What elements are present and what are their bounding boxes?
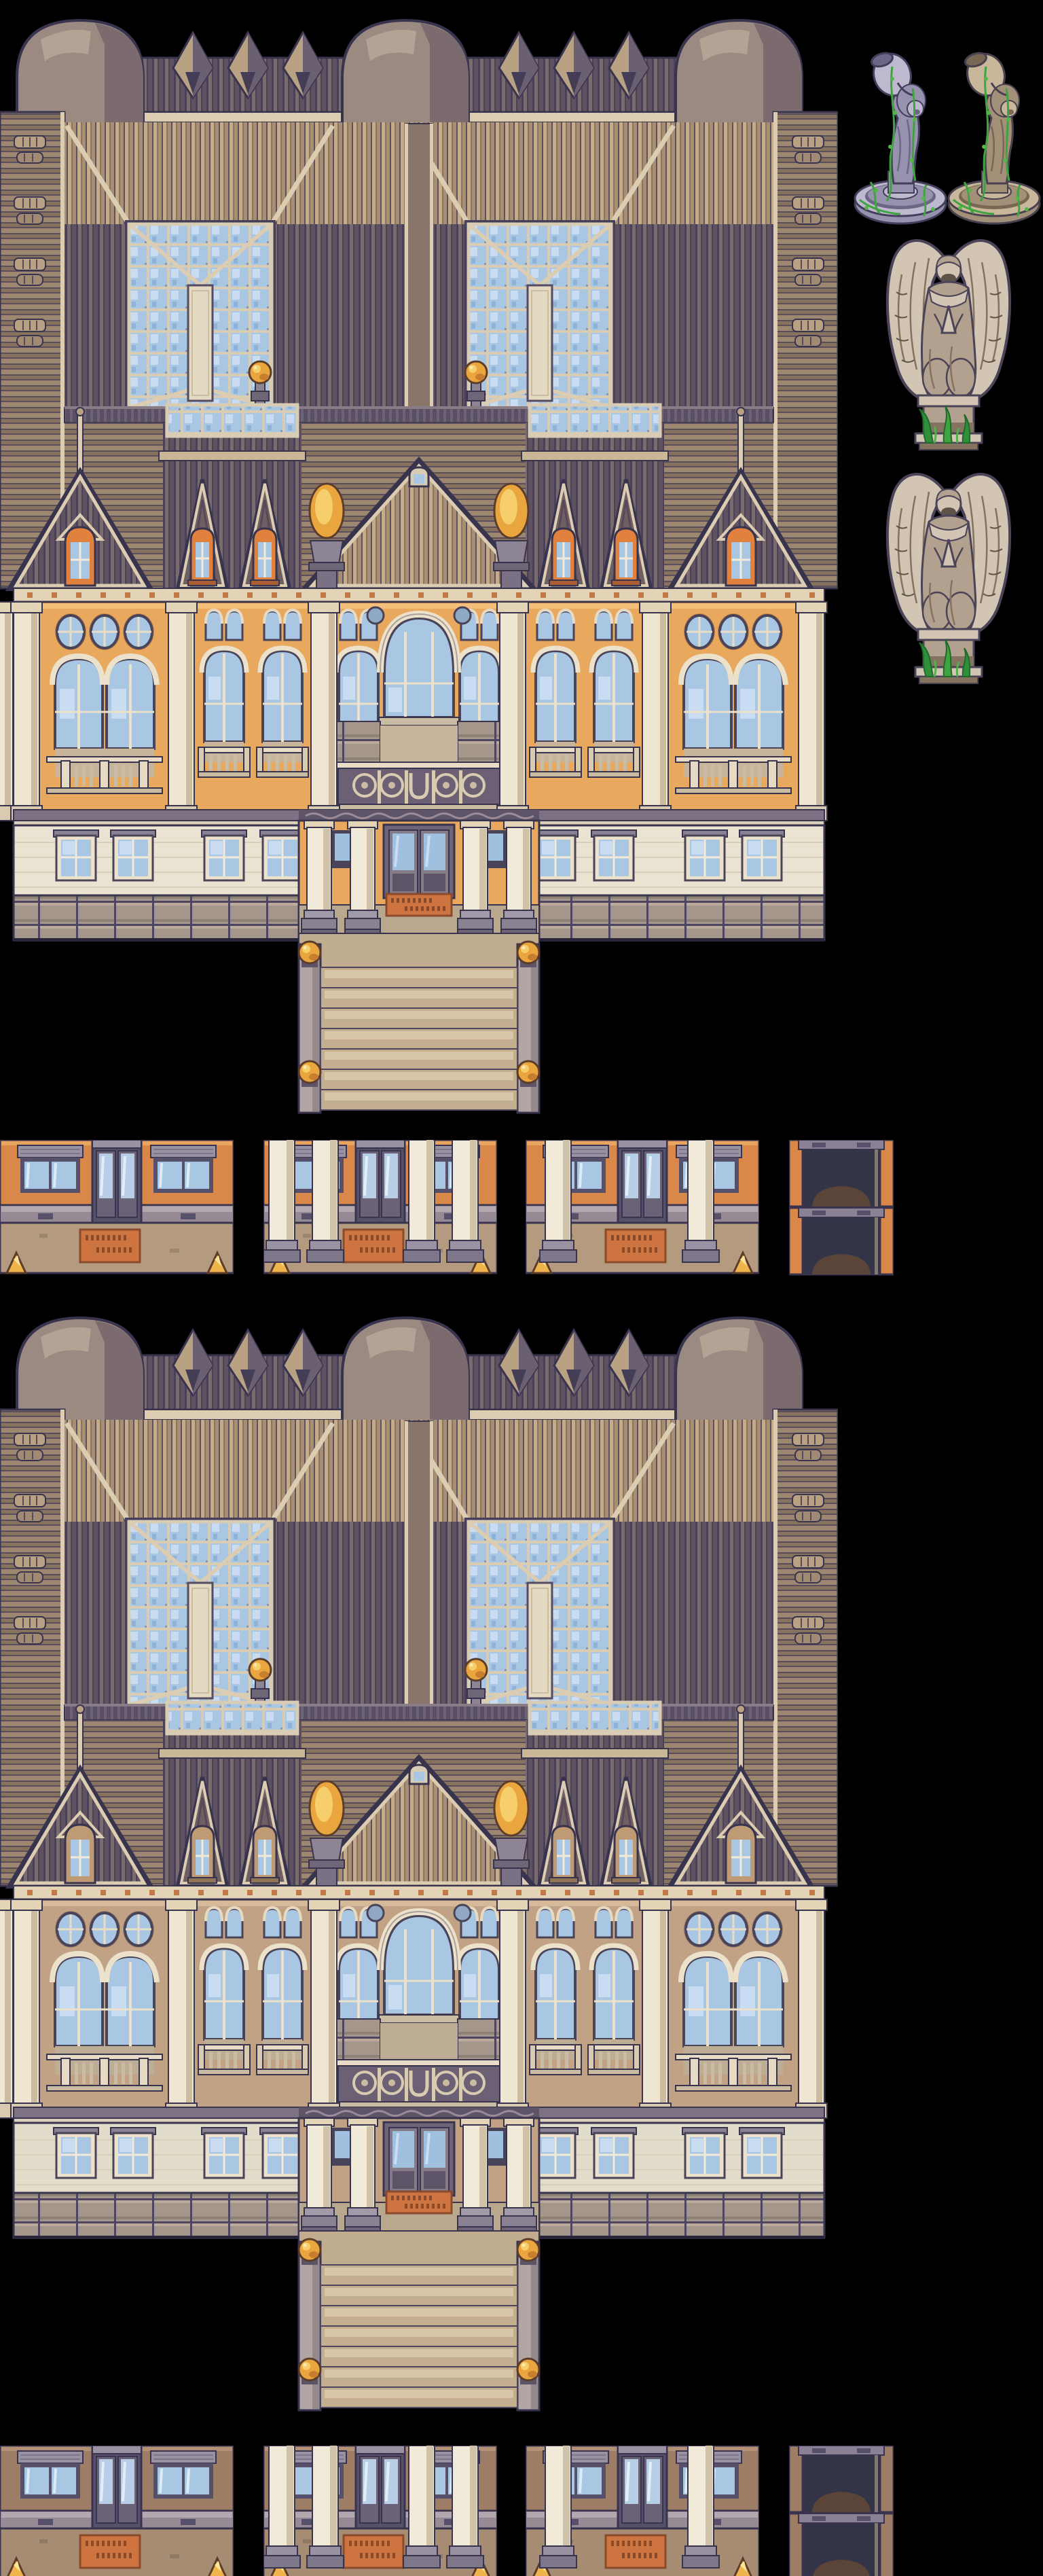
tile-wall-muted (0, 2446, 234, 2576)
tile-columns4-muted (263, 2446, 497, 2576)
tile-doorway-warm (789, 1140, 894, 1274)
tile-wall-warm (0, 1140, 234, 1273)
tile-columns2-muted (526, 2446, 759, 2576)
sprite-sheet (0, 0, 1043, 2576)
tile-doorway-muted (789, 2446, 894, 2576)
tile-columns4-warm (263, 1140, 497, 1273)
tile-columns2-warm (526, 1140, 759, 1273)
tileset-canvas (0, 0, 1043, 2576)
